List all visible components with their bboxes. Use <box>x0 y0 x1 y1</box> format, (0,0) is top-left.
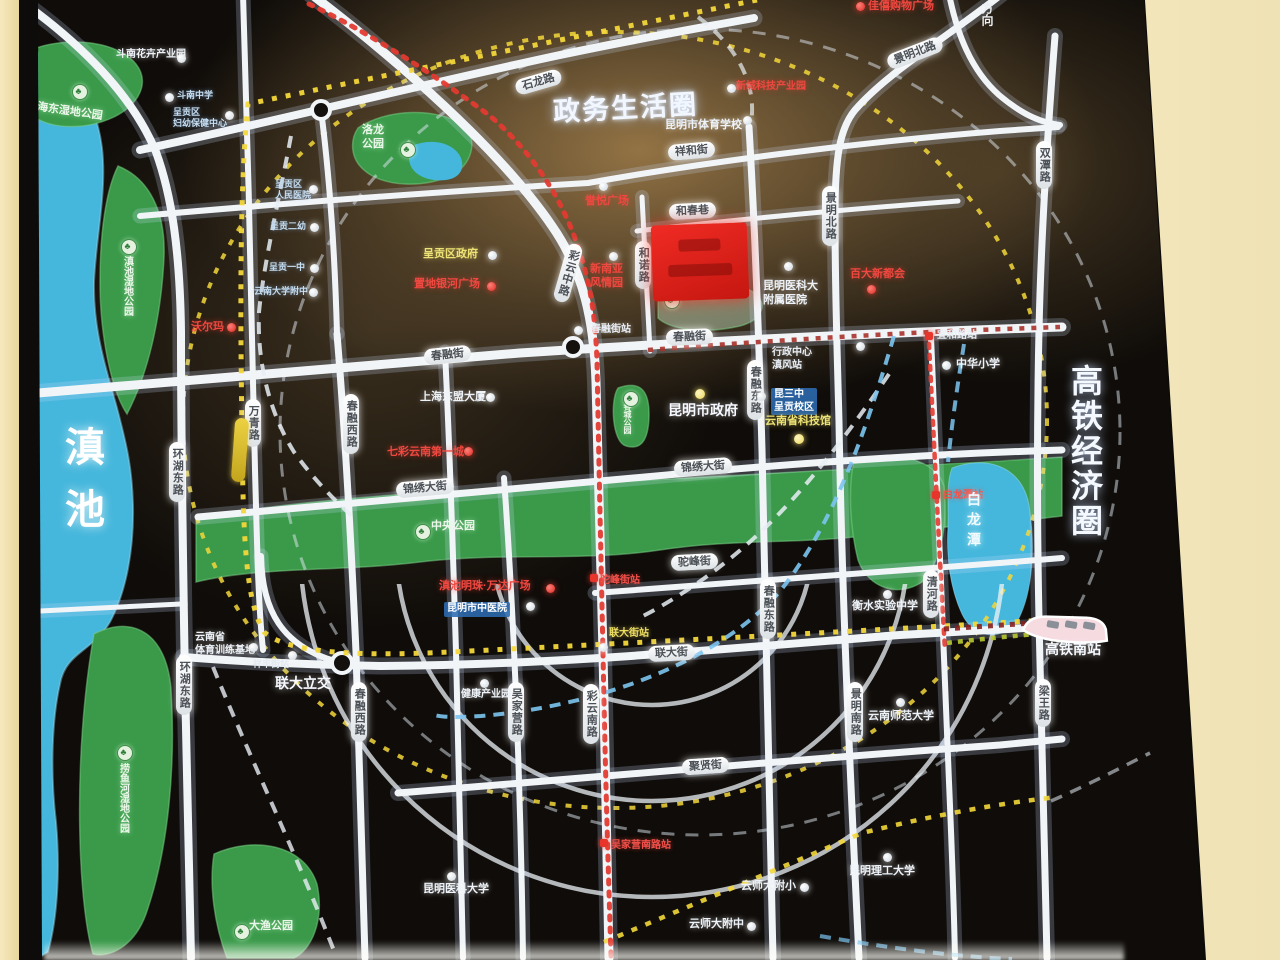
poi-label-27: 联大立交 <box>275 675 331 693</box>
map-lightbox-panel: 海东湿地公园滇池湿地公园捞鱼河湿地公园大渔公园洛龙 公园中央公园春城公园春融公园… <box>0 0 1280 960</box>
poi-dot-icon <box>883 590 892 599</box>
lake-label-dianchi: 滇池 <box>52 426 110 550</box>
road-pill-5: 锦绣大街 <box>674 457 733 477</box>
station-label-0: 春融街站 <box>591 324 631 337</box>
poi-dot-icon <box>757 392 766 401</box>
poi-label-11: 新南亚 风情园 <box>590 263 623 291</box>
station-marker-icon <box>288 651 297 660</box>
park-label-1: 滇池湿地公园 <box>120 256 133 316</box>
project-marker <box>651 222 750 301</box>
poi-dot-icon <box>794 434 804 444</box>
wall-left <box>0 0 19 960</box>
poi-label-32: 云南师范大学 <box>868 710 934 724</box>
poi-label-12: 新城科技产业园 <box>736 81 806 94</box>
station-marker-icon <box>590 574 598 582</box>
poi-dot-icon <box>526 602 535 611</box>
road-pill-7: 驼峰街 <box>671 553 719 572</box>
poi-dot-icon <box>800 883 809 892</box>
road-pill-9: 聚贤街 <box>681 756 729 776</box>
station-label-4: 联大街站 <box>609 628 649 641</box>
road-pill-21: 春融东路 <box>760 579 776 639</box>
poi-dot-icon <box>546 584 555 593</box>
park-label-0: 海东湿地公园 <box>36 101 103 124</box>
zone-label-hsr-economic-circle: 高铁经济圈 <box>1062 364 1108 539</box>
tree-icon <box>623 391 639 407</box>
station-marker-icon <box>932 491 940 499</box>
poi-label-33: 昆明理工大学 <box>849 865 915 879</box>
road-pill-1: 祥和街 <box>667 141 715 161</box>
road-pill-18: 环湖东路 <box>169 442 185 502</box>
tree-icon <box>234 924 250 940</box>
photo-scene: 海东湿地公园滇池湿地公园捞鱼河湿地公园大渔公园洛龙 公园中央公园春城公园春融公园… <box>0 0 1280 960</box>
poi-dot-icon <box>784 262 793 271</box>
poi-dot-icon <box>727 84 736 93</box>
poi-dot-icon <box>743 116 752 125</box>
poi-label-7: 沃尔玛 <box>191 321 224 335</box>
direction-note: 方向 <box>979 2 996 26</box>
lightbox-edge-glow-bottom <box>44 941 1124 960</box>
poi-label-10: 誉悦广场 <box>585 195 629 209</box>
poi-label-26: 云南省 体育训练基地 <box>195 632 255 657</box>
park-label-4: 洛龙 公园 <box>362 124 384 152</box>
poi-label-6: 云南大学附中 <box>254 286 308 297</box>
road-pill-17: 春融西路 <box>351 682 367 742</box>
poi-dot-icon <box>309 288 318 297</box>
station-marker-icon <box>856 342 865 351</box>
poi-dot-icon <box>487 282 496 291</box>
road-pill-24: 清河路 <box>923 570 939 618</box>
road-pill-25: 双潭路 <box>1036 141 1052 189</box>
poi-label-9: 置地银河广场 <box>414 278 480 292</box>
tree-icon <box>121 239 137 255</box>
poi-dot-icon <box>249 643 258 652</box>
poi-dot-icon <box>309 185 318 194</box>
lightbox-edge-glow-left <box>18 330 27 958</box>
poi-label-1: 斗南中学 <box>177 90 213 101</box>
poi-label-19: 百大新都会 <box>850 268 905 282</box>
poi-dot-icon <box>464 447 473 456</box>
poi-dot-icon <box>488 251 497 260</box>
poi-dot-icon <box>747 922 756 931</box>
station-label-2: 宜和路站 <box>937 330 977 343</box>
tree-icon <box>72 84 88 100</box>
road-pill-8: 联大街 <box>648 644 696 663</box>
poi-dot-icon <box>599 182 608 191</box>
poi-dot-icon <box>867 285 876 294</box>
road-pill-11: 彩云中路 <box>552 242 584 304</box>
road-pill-12: 彩云南路 <box>583 684 599 744</box>
tree-icon <box>415 524 431 540</box>
road-pill-23: 景明南路 <box>847 682 863 742</box>
road-pill-10: 景明北路 <box>885 35 945 71</box>
road-pill-19: 环湖东路 <box>176 655 192 715</box>
station-marker-icon <box>574 326 583 335</box>
poi-label-13: 佳僖购物广场 <box>868 0 934 14</box>
poi-label-18: 昆明医科大 附属医院 <box>763 280 818 308</box>
poi-label-28: 健康产业园 <box>461 689 511 702</box>
station-marker-icon <box>600 839 608 847</box>
park-label-5: 中央公园 <box>431 520 475 534</box>
poi-label-4: 呈贡二幼 <box>270 221 306 232</box>
poi-label-22: 中华小学 <box>956 358 1000 372</box>
poi-label-29: 昆明医科大学 <box>423 883 489 897</box>
station-marker-icon <box>925 332 933 340</box>
poi-label-31: 云师大附中 <box>689 918 744 932</box>
tree-icon <box>117 745 133 761</box>
poi-label-5: 呈贡一中 <box>269 262 305 273</box>
poi-dot-icon <box>896 698 905 707</box>
poi-label-0: 斗南花卉产业园 <box>116 49 186 62</box>
project-name-line1 <box>678 238 720 251</box>
poi-label-3: 呈贡区 人民医院 <box>275 179 311 202</box>
station-label-5: 祥丰街站 <box>253 659 289 670</box>
tree-icon <box>400 142 416 158</box>
poi-label-2: 呈贡区 妇幼保健中心 <box>173 107 227 130</box>
road-pill-6: 锦绣大街 <box>395 478 454 499</box>
poi-dot-icon <box>310 264 319 273</box>
poi-label-21: 云南省科技馆 <box>765 415 831 429</box>
station-label-1: 行政中心 滇风站 <box>772 347 812 372</box>
poi-label-30: 云师大附小 <box>741 880 796 894</box>
poi-dot-icon <box>225 111 234 120</box>
road-pill-3: 春融街 <box>666 328 714 346</box>
poi-dot-icon <box>177 54 186 63</box>
poi-dot-icon <box>942 361 951 370</box>
road-pill-15: 和诺路 <box>635 241 651 289</box>
station-label-6: 吴家营南路站 <box>611 840 671 853</box>
poi-dot-icon <box>609 252 618 261</box>
poi-label-24: 滇池明珠·万达广场 <box>439 580 531 594</box>
poi-dot-icon <box>883 853 892 862</box>
station-label-3: 驼峰街站 <box>600 575 640 588</box>
poi-dot-icon <box>310 223 319 232</box>
poi-label-16: 七彩云南第一城 <box>387 446 464 460</box>
poi-label-23: 衡水实验中学 <box>852 600 918 614</box>
park-label-3: 大渔公园 <box>249 920 293 934</box>
poi-dot-icon <box>227 323 236 332</box>
road-pill-2: 和春巷 <box>669 202 717 221</box>
poi-label-8: 呈贡区政府 <box>423 248 478 262</box>
road-pill-26: 梁王路 <box>1035 679 1051 727</box>
zone-label-government-life-circle: 政务生活圈 <box>552 82 699 129</box>
poi-dot-icon <box>695 389 705 399</box>
project-name-line2 <box>668 263 732 277</box>
poi-dot-icon <box>480 679 489 688</box>
poi-label-34: 高铁南站 <box>1045 641 1101 659</box>
poi-label-15: 上海东盟大厦 <box>420 391 486 405</box>
road-pill-22: 景明北路 <box>822 186 838 246</box>
lake-label-bailongtan: 白龙潭 <box>964 492 984 552</box>
poi-label-20: 昆三中 呈贡校区 <box>771 388 817 415</box>
road-pill-20: 春融东路 <box>747 360 763 420</box>
poi-dot-icon <box>165 93 174 102</box>
road-pill-16: 春融西路 <box>343 394 359 454</box>
poi-dot-icon <box>447 872 456 881</box>
station-marker-icon <box>599 643 608 652</box>
poi-label-25: 昆明市中医院 <box>444 602 510 617</box>
park-label-2: 捞鱼河湿地公园 <box>116 763 129 833</box>
poi-label-17: 昆明市政府 <box>668 402 738 420</box>
poi-dot-icon <box>856 2 865 11</box>
road-pill-4: 春融街 <box>423 345 471 366</box>
poi-dot-icon <box>486 393 495 402</box>
